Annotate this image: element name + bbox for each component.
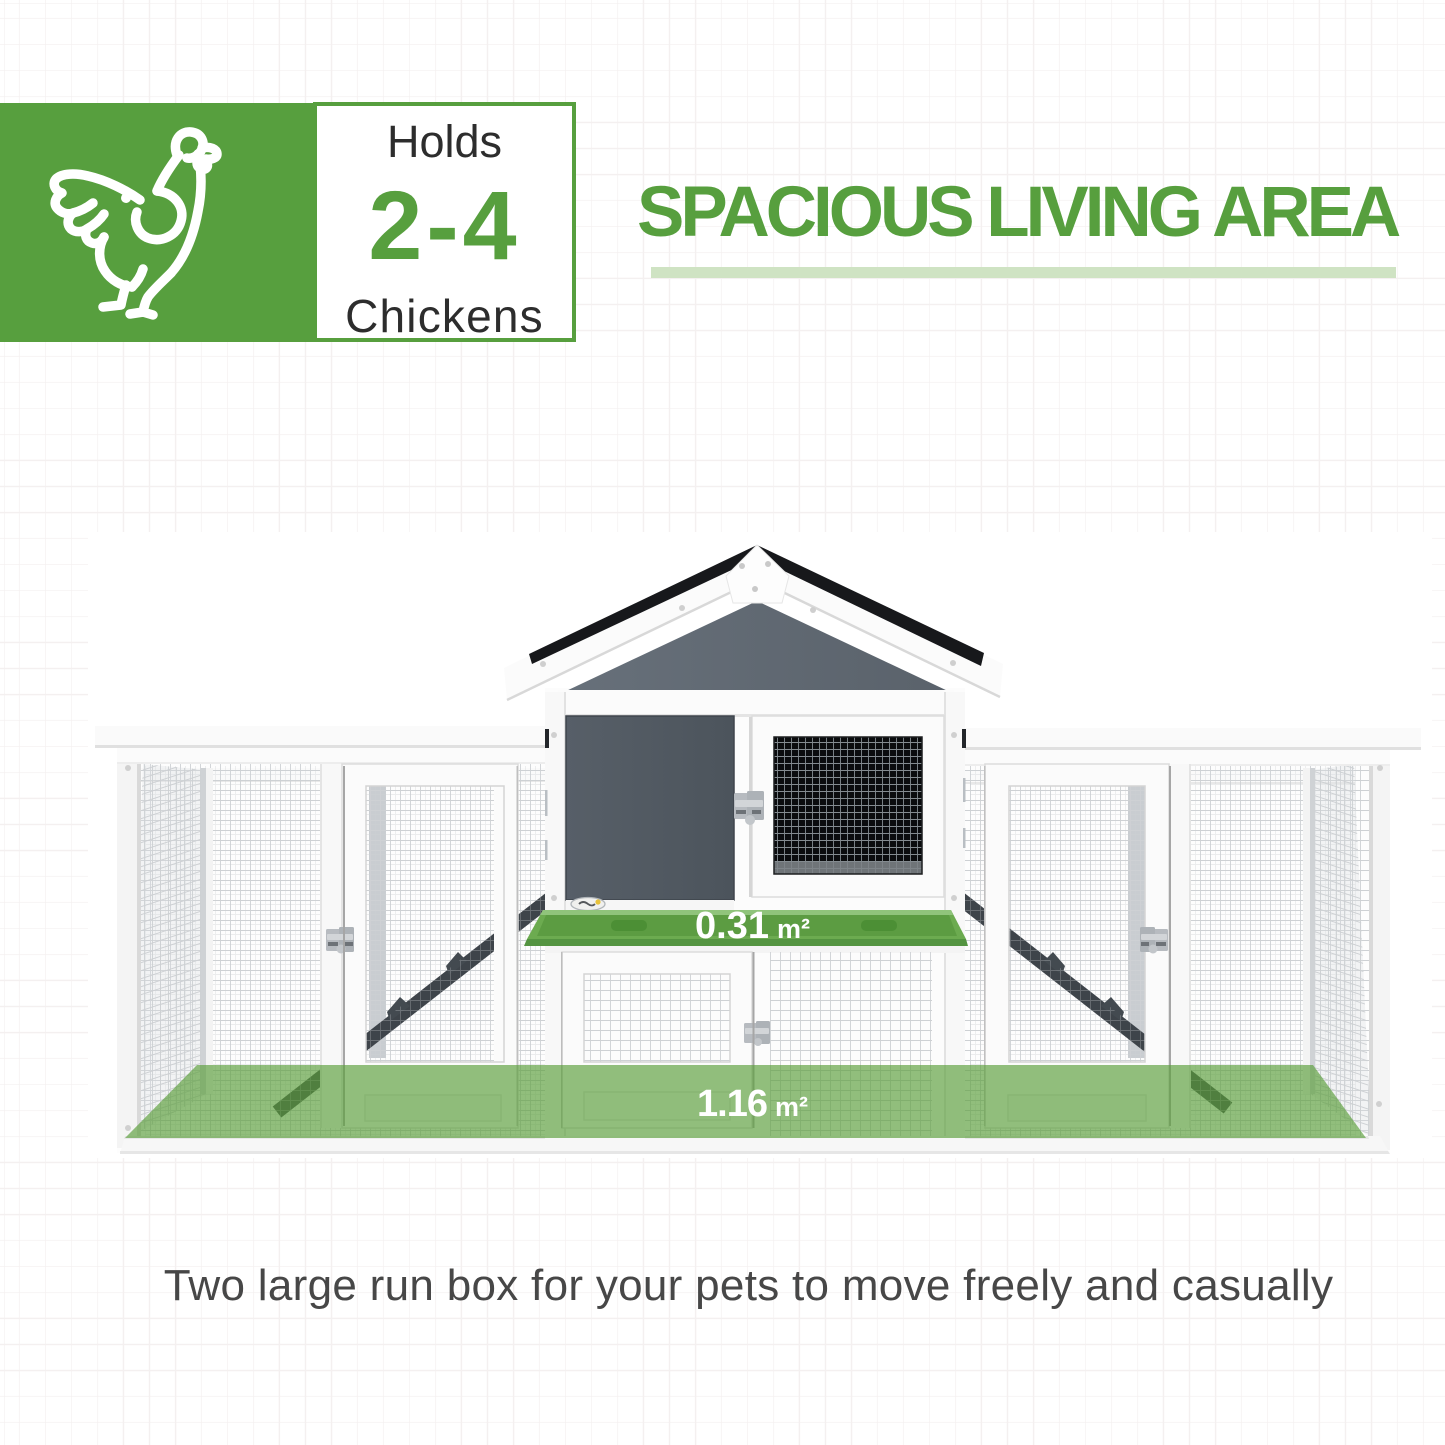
svg-text:0.31: 0.31: [695, 905, 769, 947]
svg-text:m²: m²: [777, 914, 810, 944]
svg-text:1.16: 1.16: [697, 1083, 767, 1125]
svg-text:m²: m²: [775, 1092, 808, 1122]
